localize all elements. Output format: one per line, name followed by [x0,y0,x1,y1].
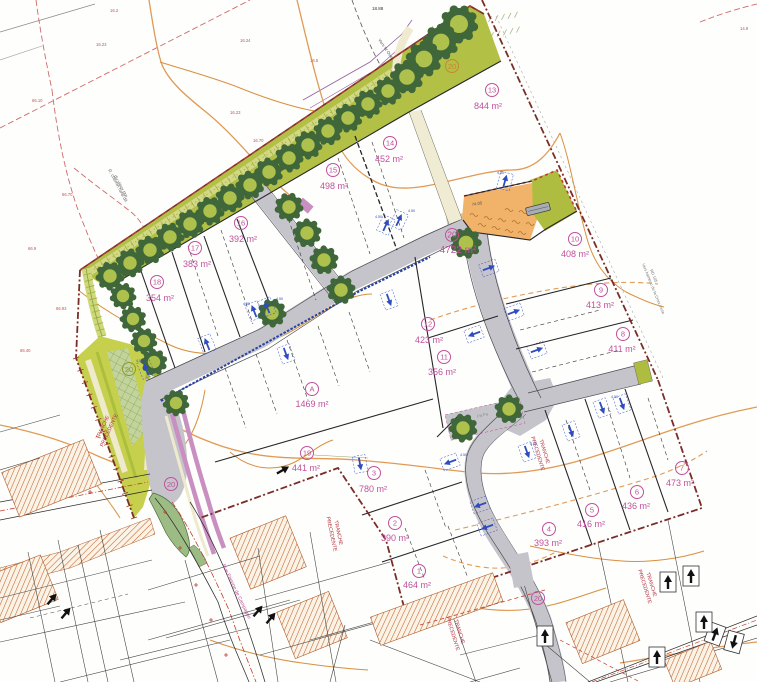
svg-text:13: 13 [488,86,496,95]
svg-text:4722 m²: 4722 m² [440,245,477,256]
svg-text:356 m²: 356 m² [428,367,456,377]
svg-text:20: 20 [447,230,457,240]
svg-text:17: 17 [191,244,199,253]
svg-text:20: 20 [125,365,133,374]
svg-text:20: 20 [167,480,175,489]
svg-text:441 m²: 441 m² [292,463,320,473]
svg-text:14: 14 [386,139,394,148]
svg-text:18.88: 18.88 [372,6,384,11]
svg-text:6: 6 [635,488,639,497]
svg-text:66.40: 66.40 [20,348,31,353]
svg-text:16.24: 16.24 [240,38,251,43]
svg-text:413 m²: 413 m² [586,300,614,310]
svg-text:1: 1 [417,567,421,576]
svg-text:473 m²: 473 m² [666,478,694,488]
svg-text:8: 8 [621,330,625,339]
svg-text:390 m²: 390 m² [381,533,409,543]
svg-text:4.50: 4.50 [136,359,143,363]
svg-text:14.9: 14.9 [740,26,749,31]
svg-text:66.93: 66.93 [56,306,67,311]
svg-text:4.50: 4.50 [375,215,382,219]
svg-text:19: 19 [303,449,311,458]
svg-text:411 m²: 411 m² [608,344,635,354]
svg-text:5.00: 5.00 [530,442,537,446]
svg-text:16.2: 16.2 [110,8,119,13]
svg-text:354 m²: 354 m² [146,293,174,303]
svg-text:7: 7 [680,464,684,473]
svg-text:3: 3 [372,469,376,478]
svg-text:20: 20 [534,594,542,603]
svg-text:16.70: 16.70 [253,138,264,143]
svg-text:464 m²: 464 m² [403,580,431,590]
svg-text:5: 5 [590,506,594,515]
svg-text:393 m²: 393 m² [534,538,562,548]
svg-text:416 m²: 416 m² [577,519,605,529]
svg-text:66.70: 66.70 [62,192,73,197]
svg-text:436 m²: 436 m² [622,501,650,511]
svg-text:9: 9 [599,286,603,295]
svg-text:18: 18 [153,278,161,287]
svg-text:392 m²: 392 m² [229,234,257,244]
svg-text:383 m²: 383 m² [183,259,211,269]
svg-text:11: 11 [440,353,448,362]
svg-text:A: A [309,385,314,394]
svg-text:423 m²: 423 m² [415,335,443,345]
svg-text:2: 2 [393,519,397,528]
svg-text:408 m²: 408 m² [561,249,589,259]
svg-text:4.50: 4.50 [497,171,504,175]
svg-text:1469 m²: 1469 m² [295,399,328,409]
svg-text:4.50: 4.50 [460,453,467,457]
svg-text:844 m²: 844 m² [474,101,502,111]
svg-text:4.50: 4.50 [611,395,618,399]
svg-text:4.50: 4.50 [243,302,250,306]
svg-text:16.23: 16.23 [96,42,107,47]
svg-text:498 m²: 498 m² [320,181,348,191]
svg-text:4: 4 [547,525,551,534]
svg-text:12: 12 [424,320,432,329]
svg-text:780 m²: 780 m² [359,484,387,494]
svg-text:4.50: 4.50 [408,209,415,213]
svg-text:15: 15 [329,166,337,175]
svg-text:4.50: 4.50 [276,297,283,301]
svg-text:16: 16 [237,219,245,228]
svg-text:20: 20 [448,62,456,71]
svg-text:66.9: 66.9 [28,246,37,251]
svg-text:10: 10 [571,235,579,244]
svg-text:16.23: 16.23 [230,110,241,115]
svg-text:66.10: 66.10 [32,98,43,103]
svg-text:452 m²: 452 m² [375,154,403,164]
